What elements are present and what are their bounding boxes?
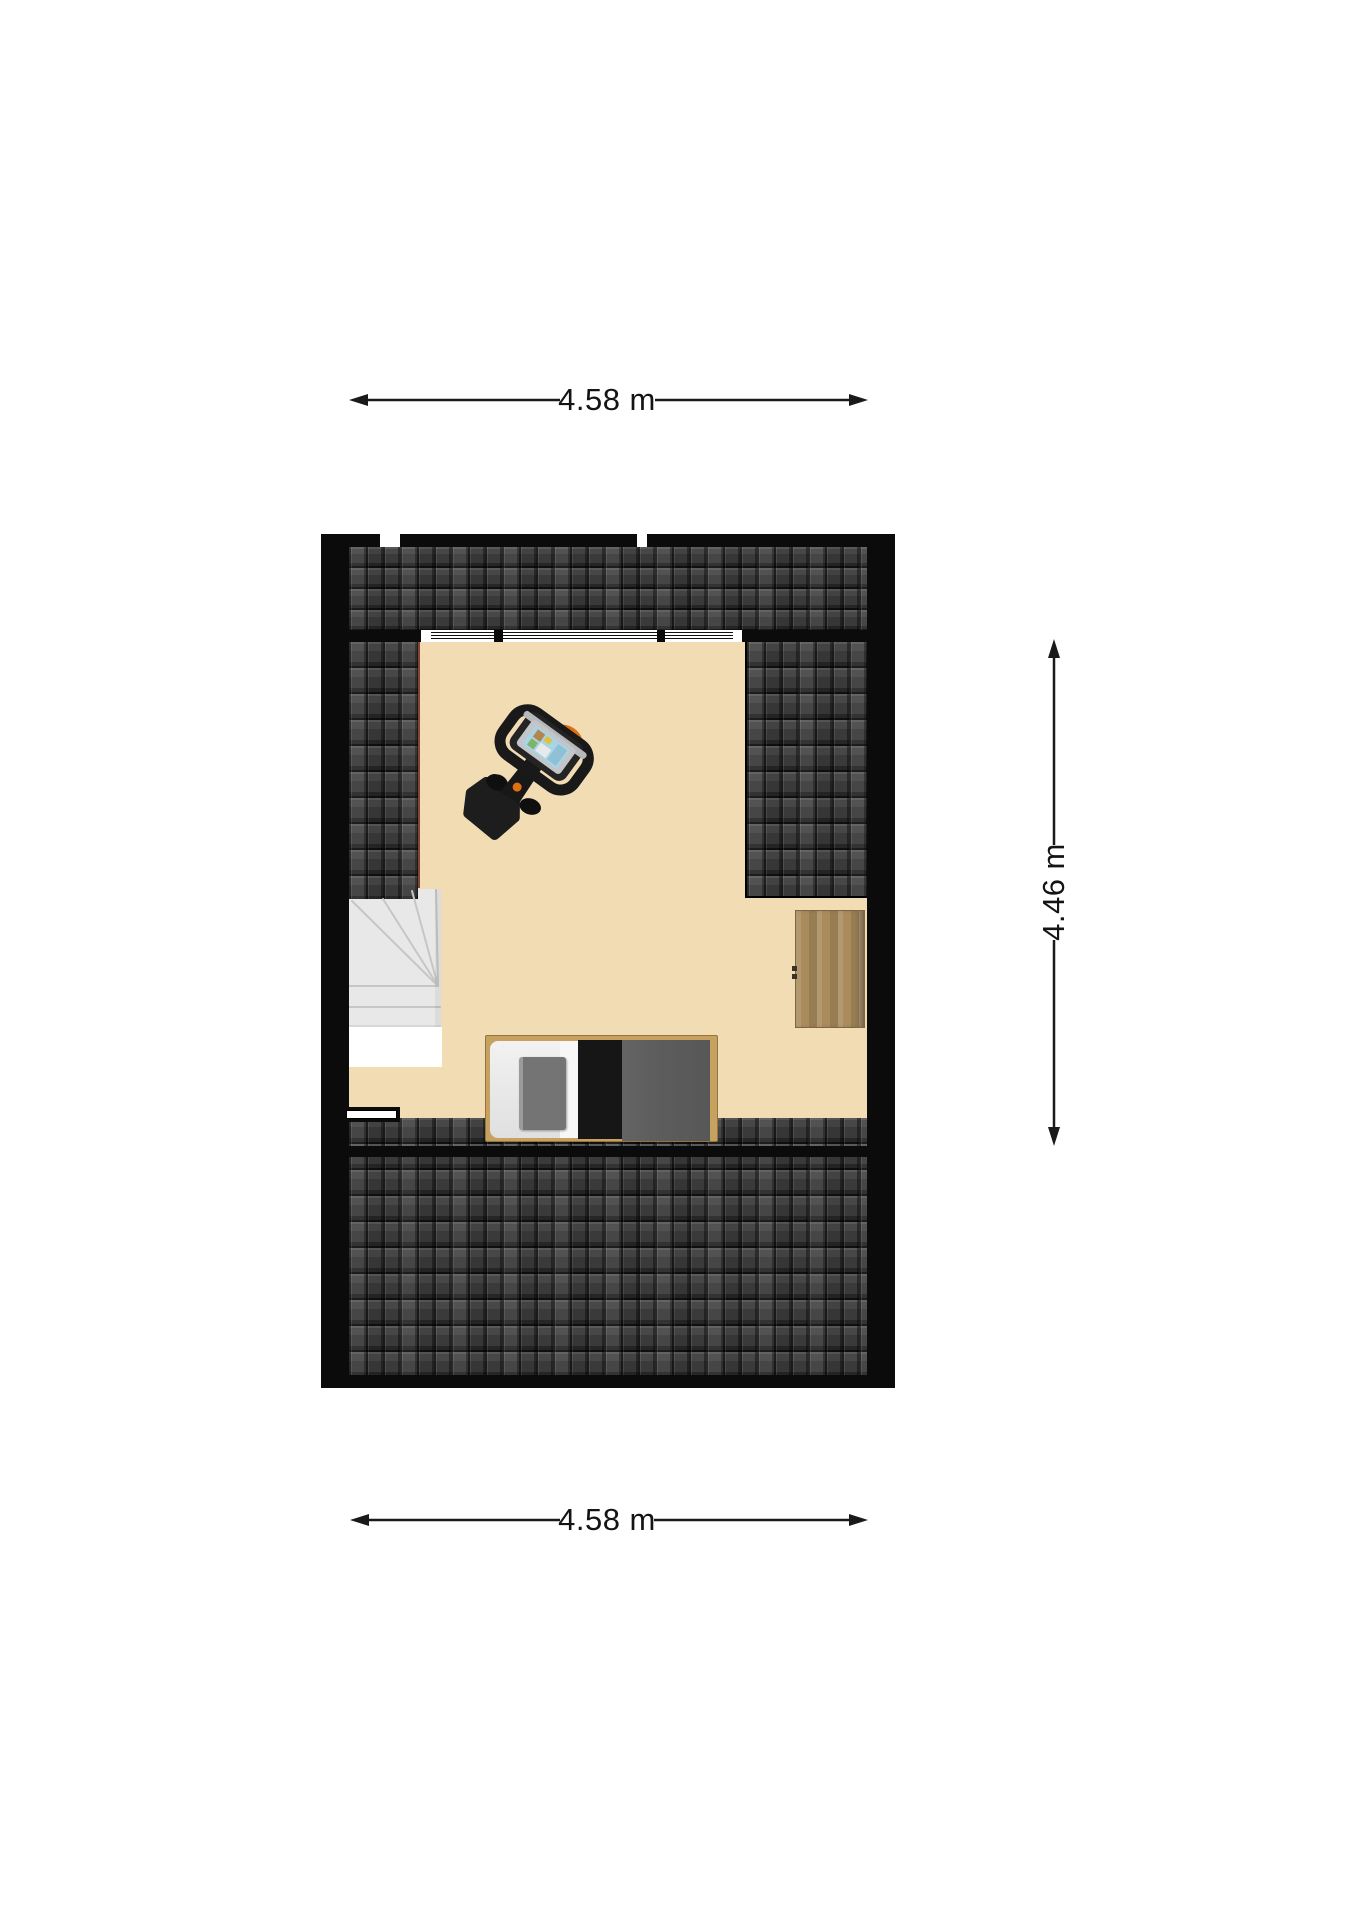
dimension-label-bottom: 4.58 m (558, 1502, 656, 1538)
floor-plan-page: 4.58 m 4.58 m 4.46 m (0, 0, 1358, 1920)
dimension-arrows (0, 0, 1358, 1920)
dimension-label-top: 4.58 m (558, 382, 656, 418)
dimension-label-right: 4.46 m (1036, 843, 1072, 941)
